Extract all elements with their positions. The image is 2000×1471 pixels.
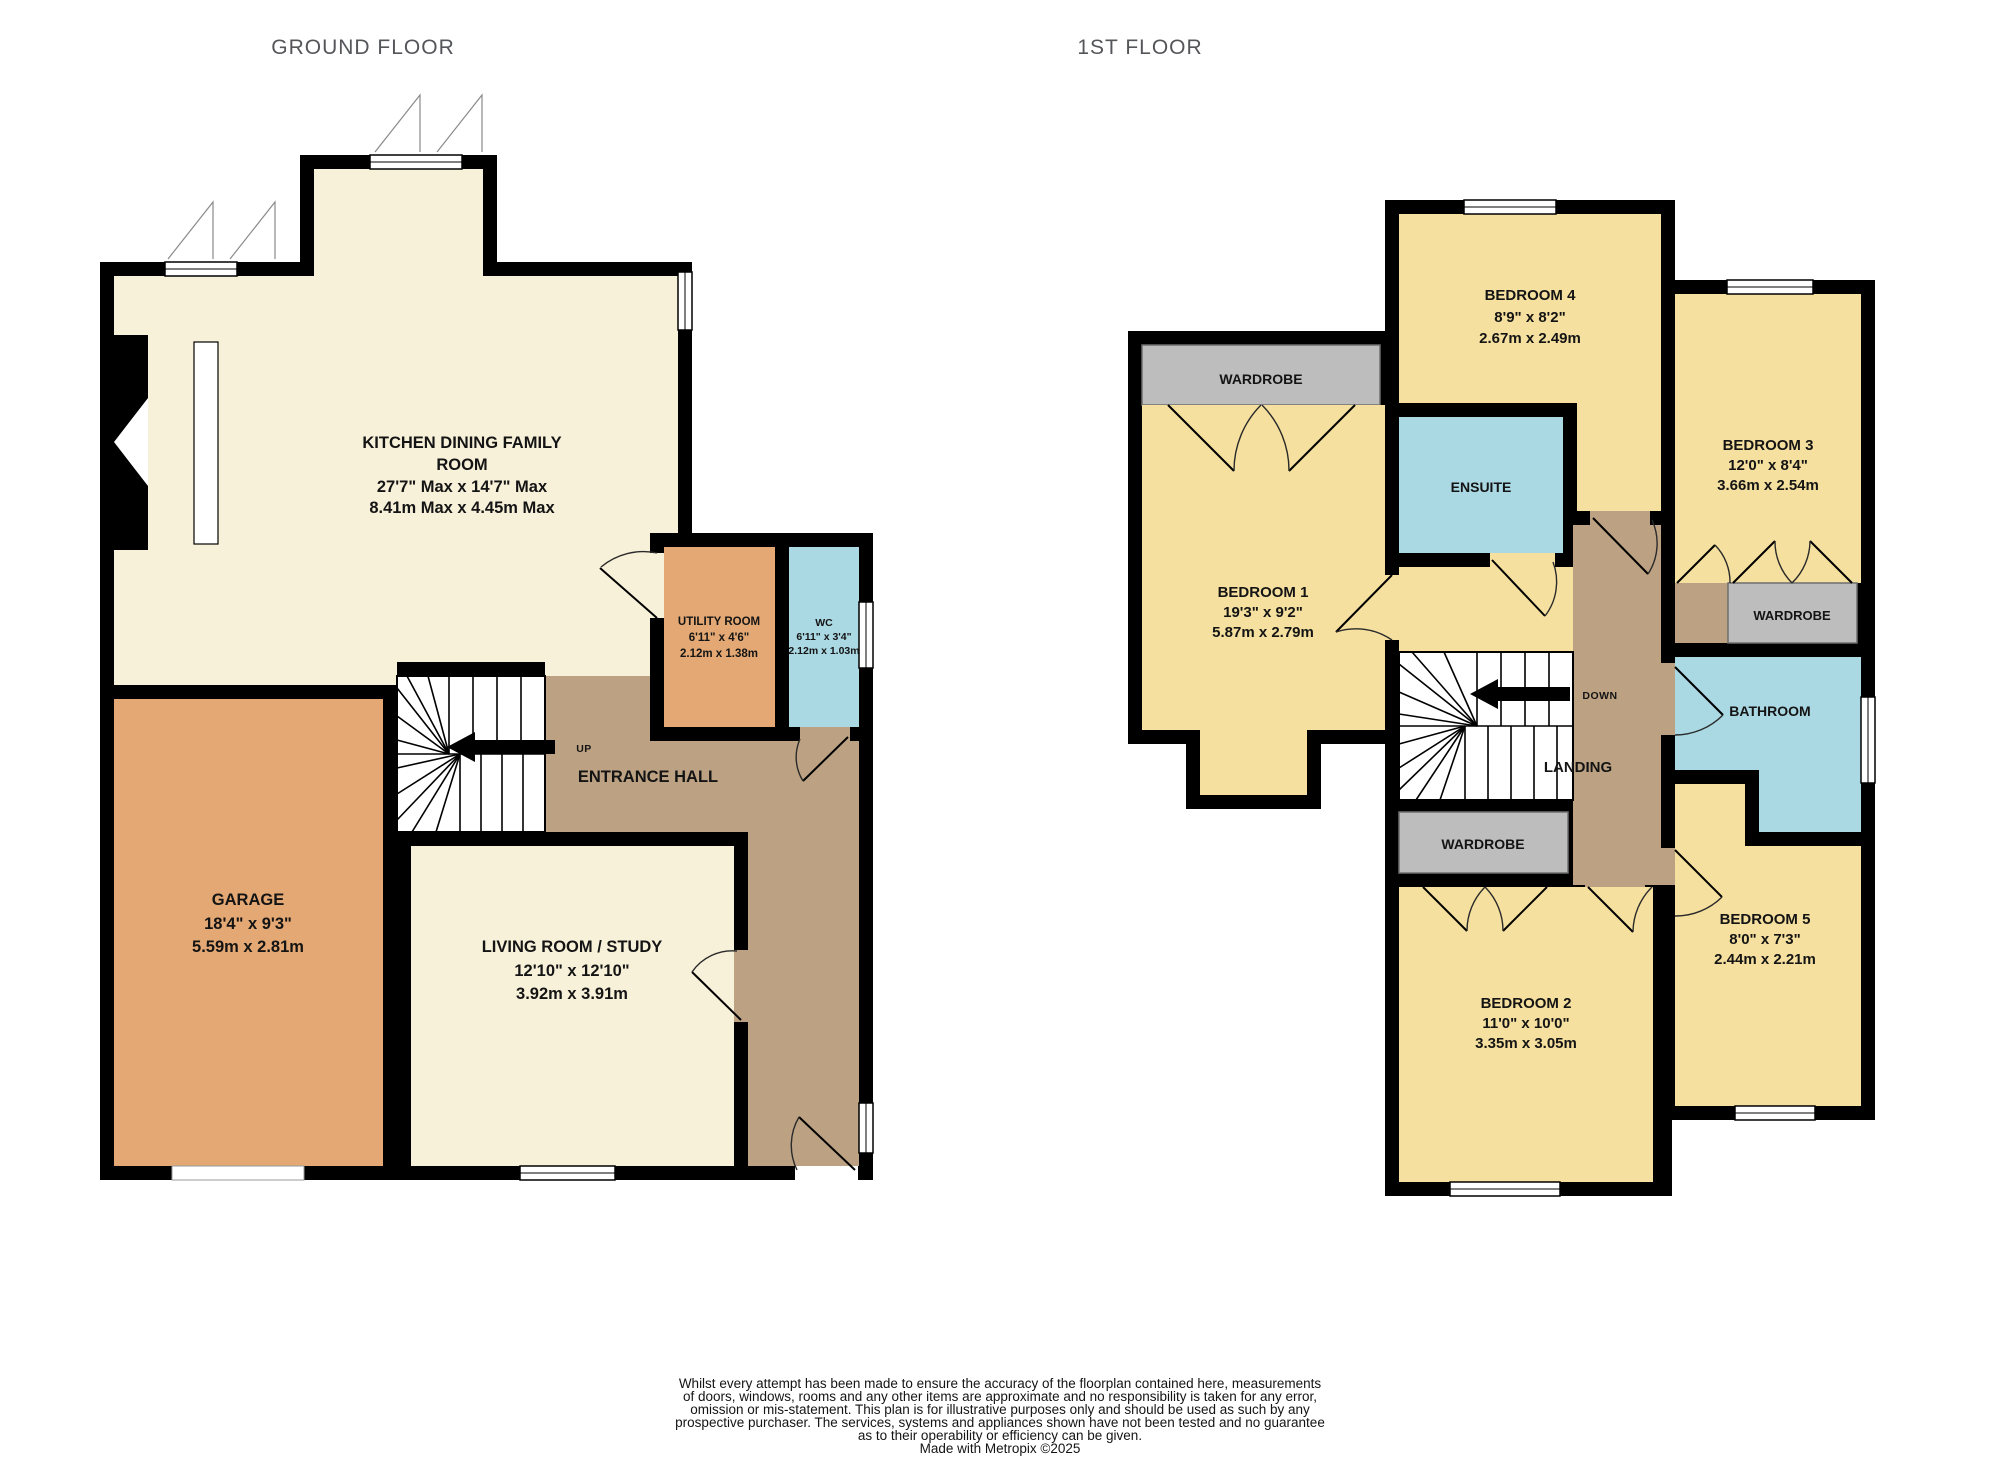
wardrobe1-label: WARDROBE <box>1219 371 1302 387</box>
bedroom4-dims-imperial: 8'9" x 8'2" <box>1494 309 1565 326</box>
living-door-opening <box>734 950 748 1022</box>
disclaimer: Whilst every attempt has been made to en… <box>675 1376 1325 1456</box>
utility-dims-metric: 2.12m x 1.38m <box>680 648 758 660</box>
first-floor-plan: DOWN <box>1128 200 1875 1196</box>
stairs-up-label: UP <box>576 743 592 755</box>
entrance-hall-label: ENTRANCE HALL <box>578 768 718 786</box>
bedroom3-dims-imperial: 12'0" x 8'4" <box>1728 457 1808 474</box>
bedroom2-door-opening <box>1585 873 1645 887</box>
floorplan-svg: GROUND FLOOR 1ST FLOOR <box>0 0 2000 1471</box>
bedroom2-label: BEDROOM 2 <box>1481 995 1572 1012</box>
bedroom1-door-opening <box>1385 575 1399 640</box>
bedroom1-dims-metric: 5.87m x 2.79m <box>1212 624 1314 641</box>
living-dims-imperial: 12'10" x 12'10" <box>514 962 629 980</box>
stairs-down-label: DOWN <box>1582 690 1617 702</box>
vestibule <box>1399 567 1573 652</box>
floorplan-page: GROUND FLOOR 1ST FLOOR <box>0 0 2000 1471</box>
bedroom2-dims-metric: 3.35m x 3.05m <box>1475 1035 1577 1052</box>
landing-notch <box>1675 583 1728 643</box>
first-floor-title: 1ST FLOOR <box>1077 36 1202 59</box>
bedroom3-dims-metric: 3.66m x 2.54m <box>1717 477 1819 494</box>
landing-label: LANDING <box>1544 759 1612 776</box>
bedroom4-dims-metric: 2.67m x 2.49m <box>1479 330 1581 347</box>
front-door-opening <box>795 1166 858 1180</box>
ground-floor-title: GROUND FLOOR <box>271 36 455 59</box>
room-living-study <box>411 846 734 1166</box>
ensuite-label: ENSUITE <box>1451 479 1512 495</box>
room-landing <box>1573 525 1661 885</box>
wc-label: WC <box>815 617 833 629</box>
garage-door-opening <box>172 1166 304 1180</box>
kitchen-dims-imperial: 27'7" Max x 14'7" Max <box>377 478 548 496</box>
bedroom2-dims-imperial: 11'0" x 10'0" <box>1482 1015 1569 1032</box>
wc-dims-metric: 2.12m x 1.03m <box>788 645 859 657</box>
kitchen-dims-metric: 8.41m Max x 4.45m Max <box>369 499 555 517</box>
utility-dims-imperial: 6'11" x 4'6" <box>689 632 750 644</box>
kitchen-label: KITCHEN DINING FAMILY <box>362 434 561 452</box>
bedroom5-dims-metric: 2.44m x 2.21m <box>1714 951 1816 968</box>
bedroom1-dims-imperial: 19'3" x 9'2" <box>1223 604 1303 621</box>
bedroom5-door-opening <box>1661 848 1675 885</box>
ensuite-door-opening <box>1490 553 1555 567</box>
kitchen-label-2: ROOM <box>436 456 487 474</box>
metropix-credit: Made with Metropix ©2025 <box>920 1441 1081 1456</box>
ground-floor-plan: UP KITCHEN DINING FAMILY ROOM 27'7" Max … <box>100 95 873 1180</box>
bedroom5-dims-imperial: 8'0" x 7'3" <box>1729 931 1800 948</box>
bedroom3-label: BEDROOM 3 <box>1723 437 1814 454</box>
wc-dims-imperial: 6'11" x 3'4" <box>796 631 851 643</box>
bathroom-door-opening <box>1661 663 1675 735</box>
wc-door-opening <box>800 727 850 741</box>
garage-dims-imperial: 18'4" x 9'3" <box>204 915 292 933</box>
wardrobe2-label: WARDROBE <box>1441 836 1524 852</box>
wardrobe3-label: WARDROBE <box>1753 608 1831 623</box>
bedroom1-label: BEDROOM 1 <box>1218 584 1309 601</box>
garage-label: GARAGE <box>212 891 284 909</box>
bathroom-label: BATHROOM <box>1729 703 1810 719</box>
bedroom5-label: BEDROOM 5 <box>1720 911 1811 928</box>
utility-label: UTILITY ROOM <box>678 616 760 628</box>
living-label: LIVING ROOM / STUDY <box>482 938 663 956</box>
living-dims-metric: 3.92m x 3.91m <box>516 985 628 1003</box>
utility-door-opening <box>650 553 664 618</box>
bedroom4-label: BEDROOM 4 <box>1485 287 1577 304</box>
garage-dims-metric: 5.59m x 2.81m <box>192 938 304 956</box>
